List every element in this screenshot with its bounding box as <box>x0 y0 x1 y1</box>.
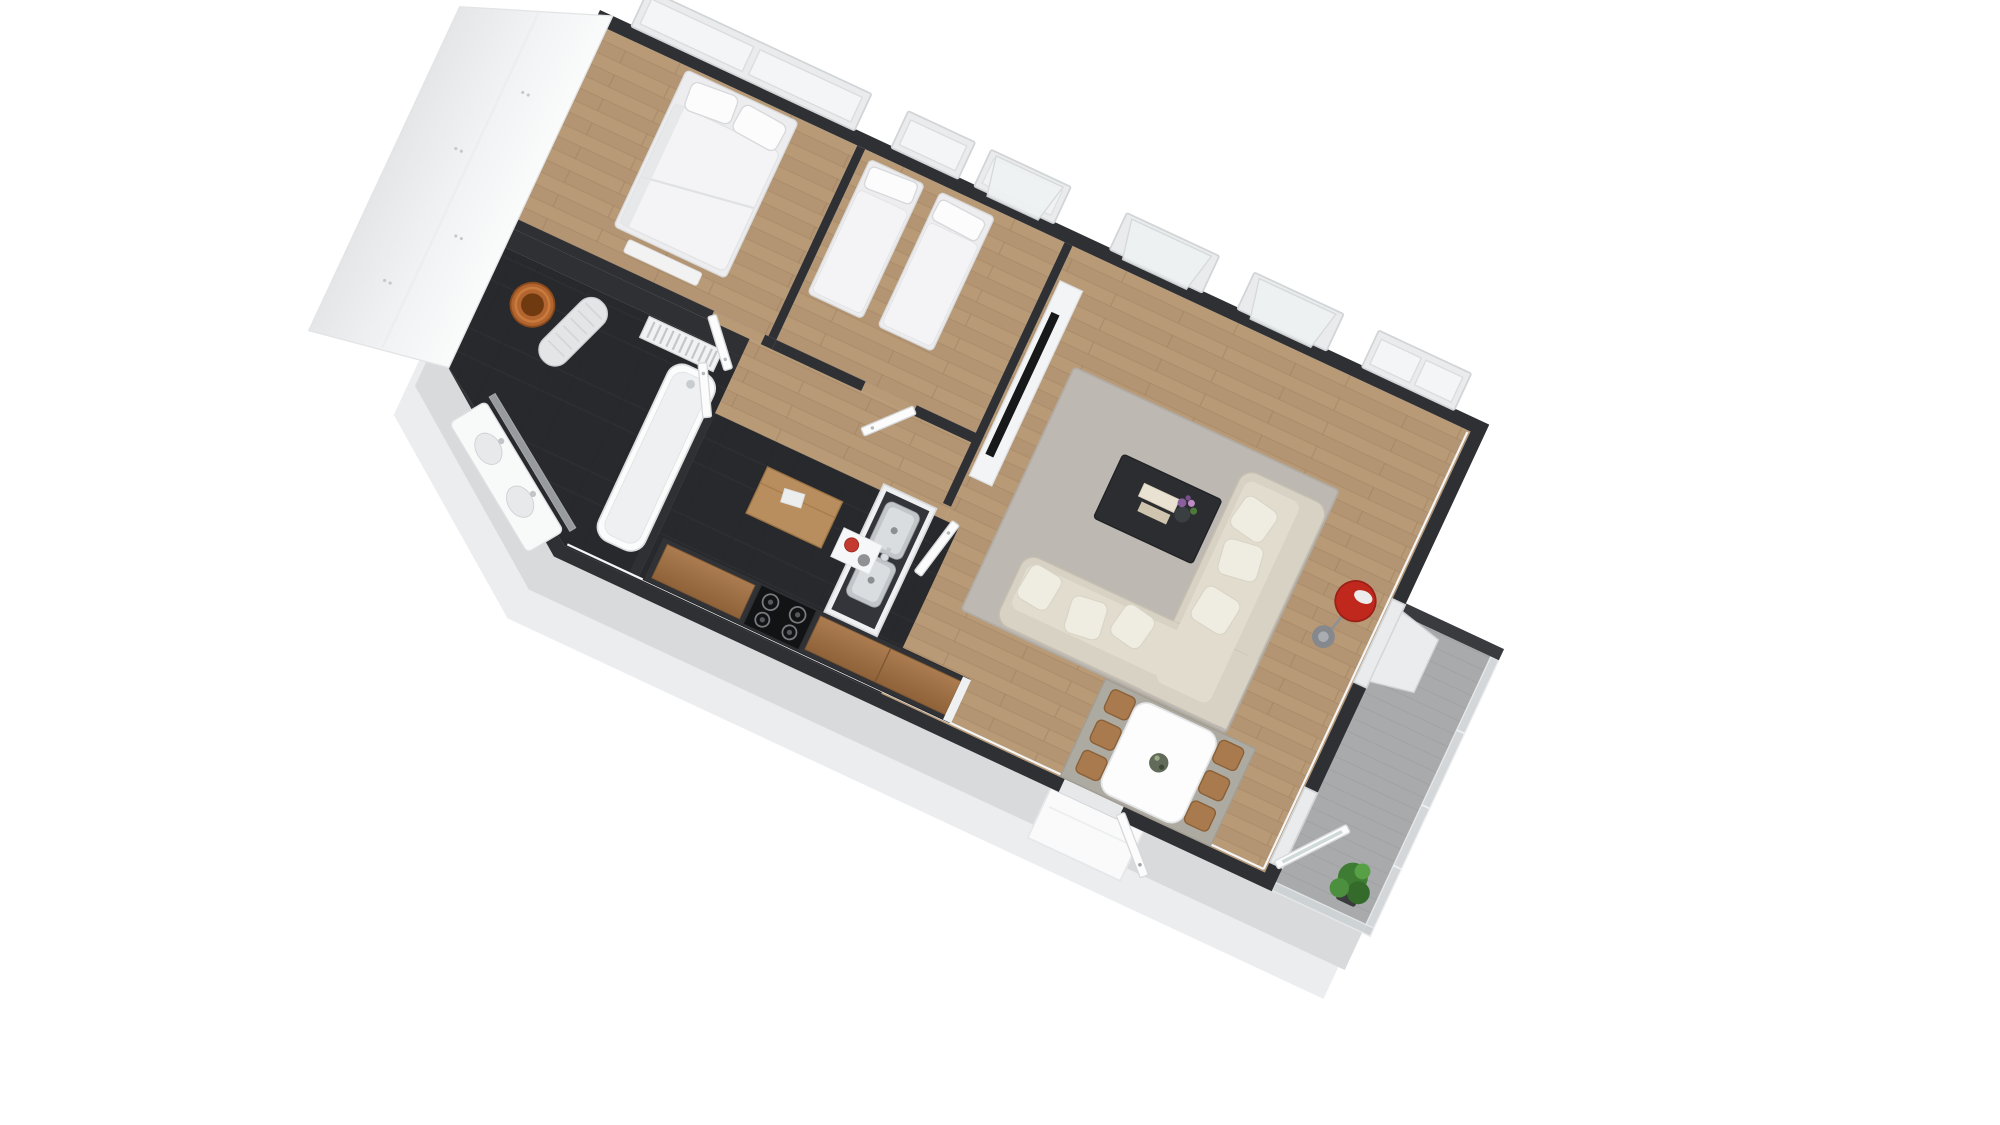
floorplan-svg <box>0 0 2000 1125</box>
floorplan-stage <box>0 0 2000 1125</box>
apartment-plan <box>234 0 1604 1006</box>
